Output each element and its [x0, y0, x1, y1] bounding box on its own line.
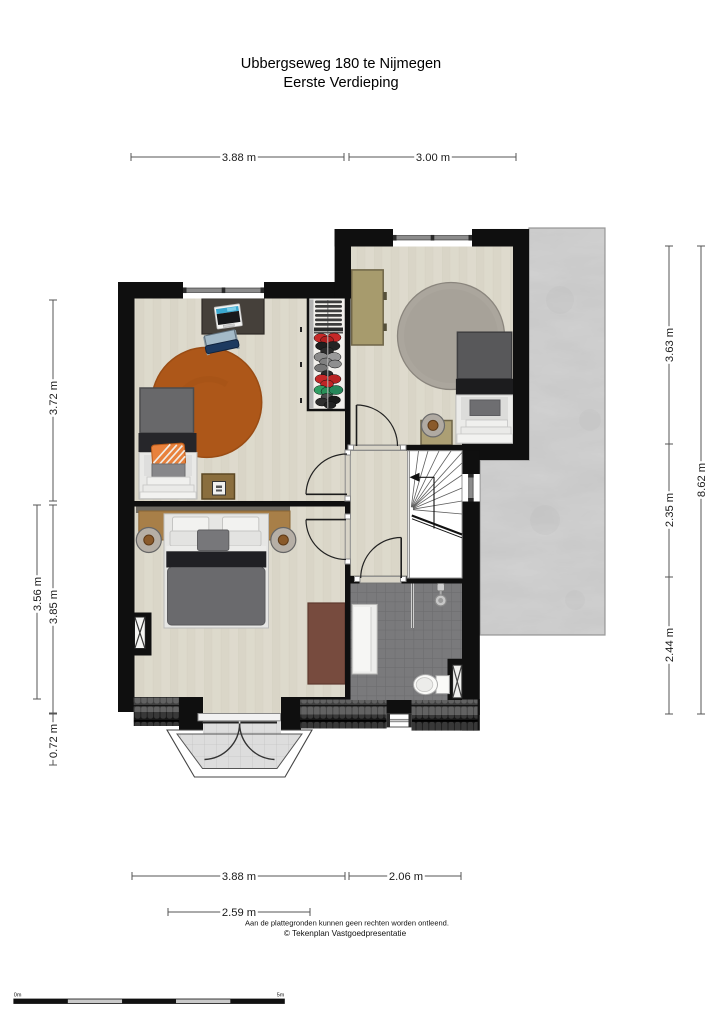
- svg-text:3.72 m: 3.72 m: [48, 381, 60, 415]
- svg-text:2.06 m: 2.06 m: [389, 871, 423, 883]
- svg-text:3.00 m: 3.00 m: [416, 152, 450, 164]
- svg-text:0.72 m: 0.72 m: [48, 724, 60, 758]
- svg-text:Aan de plattegronden kunnen ge: Aan de plattegronden kunnen geen rechten…: [245, 919, 449, 928]
- svg-text:8.62 m: 8.62 m: [696, 463, 708, 497]
- svg-text:3.56 m: 3.56 m: [32, 577, 44, 611]
- svg-text:5m: 5m: [277, 993, 285, 999]
- svg-text:3.85 m: 3.85 m: [48, 590, 60, 624]
- svg-text:Ubbergseweg 180 te Nijmegen: Ubbergseweg 180 te Nijmegen: [241, 56, 441, 72]
- svg-text:Eerste Verdieping: Eerste Verdieping: [283, 75, 398, 91]
- svg-text:© Tekenplan Vastgoedpresentati: © Tekenplan Vastgoedpresentatie: [284, 929, 407, 938]
- svg-text:2.44 m: 2.44 m: [664, 628, 676, 662]
- svg-text:2.35 m: 2.35 m: [664, 493, 676, 527]
- svg-text:3.63 m: 3.63 m: [664, 328, 676, 362]
- svg-text:2.59 m: 2.59 m: [222, 907, 256, 919]
- svg-text:0m: 0m: [14, 993, 22, 999]
- svg-text:3.88 m: 3.88 m: [222, 152, 256, 164]
- svg-text:3.88 m: 3.88 m: [222, 871, 256, 883]
